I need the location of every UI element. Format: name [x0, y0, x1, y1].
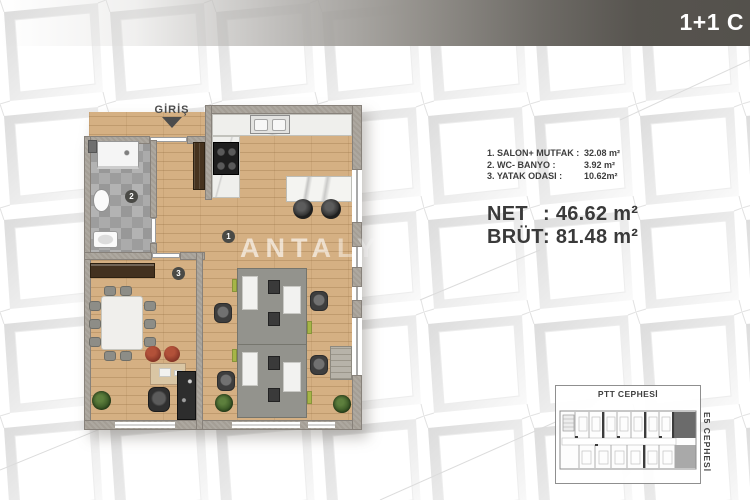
office-chair — [310, 355, 328, 375]
bathroom-column — [88, 140, 97, 153]
pouf — [145, 346, 161, 362]
wall-right-a — [352, 105, 362, 170]
apartment-type-title: 1+1 C — [679, 9, 744, 36]
chair — [144, 301, 156, 311]
chair — [89, 319, 101, 329]
wall-right-c — [352, 267, 362, 287]
bedroom-shelf — [90, 263, 155, 278]
window-right-1 — [352, 170, 362, 222]
desk-monitor — [283, 362, 301, 392]
office-chair — [310, 291, 328, 311]
chair — [120, 351, 132, 361]
room-area-row: 1. SALON+ MUTFAK : 32.08 m² — [487, 148, 621, 158]
desk-accent — [232, 349, 237, 362]
desk-monitor — [242, 352, 258, 386]
net-value: : 46.62 m² — [543, 203, 638, 226]
chair — [104, 351, 116, 361]
wall-kitchen-top — [205, 105, 362, 114]
desk-keyboard — [268, 280, 280, 294]
window-bottom-3 — [308, 422, 335, 428]
brut-area-row: BRÜT : 81.48 m² — [487, 226, 638, 249]
office-chair — [217, 371, 235, 391]
window-right-4 — [352, 318, 362, 375]
office-desk-block — [237, 268, 307, 418]
desk-chair — [148, 387, 170, 412]
sink-basin-left — [254, 119, 268, 131]
office-chair — [214, 303, 232, 323]
chair — [104, 286, 116, 296]
meeting-table — [101, 296, 143, 350]
toilet — [93, 189, 110, 212]
room-area-row: 3. YATAK ODASI : 10.62m² — [487, 171, 621, 181]
watermark: ANTALYA — [240, 233, 404, 264]
wall-left — [84, 136, 91, 430]
chair — [89, 301, 101, 311]
brut-value: : 81.48 m² — [543, 226, 638, 249]
room-value: 3.92 m² — [584, 160, 615, 170]
room-label: 1. SALON+ MUTFAK : — [487, 148, 584, 158]
sink-basin-right — [272, 119, 286, 131]
net-label: NET — [487, 203, 543, 226]
desk-accent — [307, 391, 312, 404]
wall-kitchen-left — [205, 105, 212, 200]
room-area-row: 2. WC- BANYO : 3.92 m² — [487, 160, 621, 170]
keyplan-schematic — [559, 407, 697, 473]
desk-keyboard — [268, 356, 280, 370]
room-marker-bedroom: 3 — [172, 267, 185, 280]
bar-stool — [293, 199, 313, 219]
key-plan: PTT CEPHESİ — [555, 385, 701, 484]
brut-label: BRÜT — [487, 226, 543, 249]
plant — [92, 391, 111, 410]
window-bottom-2 — [232, 422, 300, 428]
keyplan-right-label: E5 CEPHESİ — [702, 412, 712, 474]
keyplan-top-label: PTT CEPHESİ — [556, 389, 700, 399]
chair — [89, 337, 101, 347]
room-marker-salon: 1 — [222, 230, 235, 243]
room-value: 32.08 m² — [584, 148, 620, 158]
desk-accent — [307, 321, 312, 334]
wall-bathroom-right — [150, 140, 157, 218]
desk-keyboard — [268, 388, 280, 402]
bedroom-cabinet — [177, 371, 196, 420]
salon-cabinet — [330, 346, 352, 380]
room-label: 2. WC- BANYO : — [487, 160, 584, 170]
shower — [97, 141, 139, 169]
entrance-label: GİRİŞ — [151, 104, 193, 116]
entrance-arrow-icon — [162, 117, 182, 128]
desk-monitor — [242, 276, 258, 310]
bedroom-door — [152, 253, 180, 258]
plant — [333, 395, 351, 413]
chair — [120, 286, 132, 296]
total-areas: NET : 46.62 m² BRÜT : 81.48 m² — [487, 203, 638, 249]
desk-accent — [232, 279, 237, 292]
window-bottom-1 — [115, 422, 175, 428]
pouf — [164, 346, 180, 362]
floor-plan: 1 2 3 — [84, 103, 362, 433]
entry-closet — [193, 142, 205, 190]
plant — [215, 394, 233, 412]
wall-right-d — [352, 300, 362, 318]
net-area-row: NET : 46.62 m² — [487, 203, 638, 226]
kitchen-island — [286, 176, 352, 202]
desk-keyboard — [268, 312, 280, 326]
stove — [213, 142, 239, 175]
bathroom-sink — [93, 231, 118, 248]
room-area-list: 1. SALON+ MUTFAK : 32.08 m² 2. WC- BANYO… — [487, 148, 621, 183]
entrance-label-group: GİRİŞ — [151, 104, 193, 128]
desk-divider — [238, 344, 306, 345]
title-banner: 1+1 C — [0, 0, 750, 46]
wall-right-e — [352, 375, 362, 430]
window-right-3 — [352, 287, 362, 300]
room-value: 10.62m² — [584, 171, 618, 181]
desk-monitor — [283, 286, 301, 314]
chair — [144, 319, 156, 329]
wall-bedroom-top-a — [84, 252, 152, 260]
laptop — [159, 368, 171, 377]
bar-stool — [321, 199, 341, 219]
kitchen-sink — [250, 115, 290, 134]
room-marker-bathroom: 2 — [125, 190, 138, 203]
bathroom-door — [151, 218, 156, 243]
wall-bedroom-right — [196, 252, 203, 430]
room-label: 3. YATAK ODASI : — [487, 171, 584, 181]
